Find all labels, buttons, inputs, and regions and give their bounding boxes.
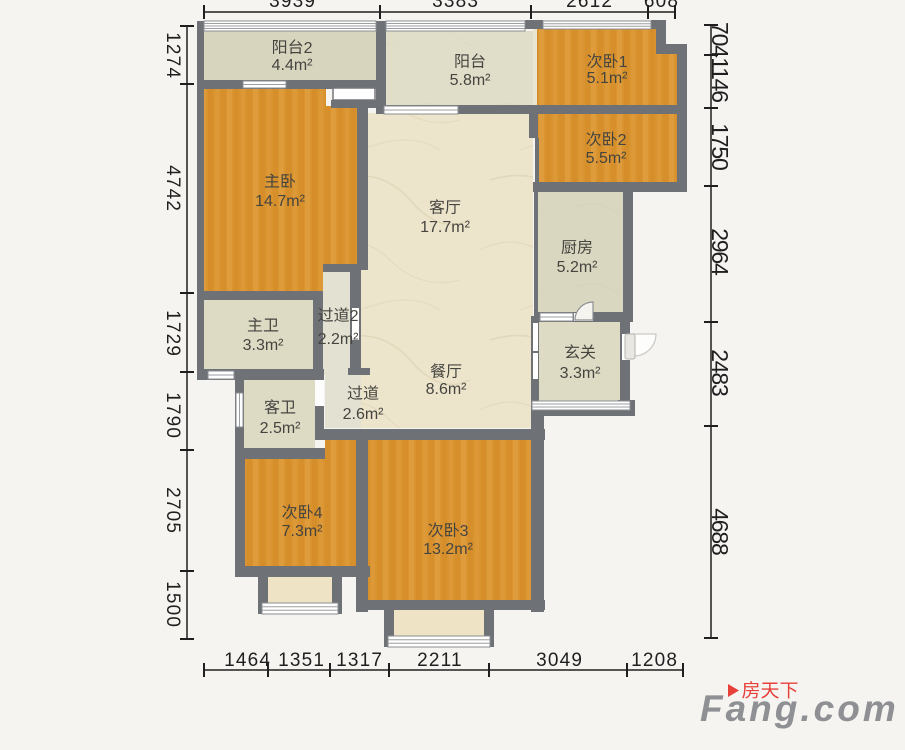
svg-text:Fang.com: Fang.com xyxy=(700,688,899,729)
svg-text:4: 4 xyxy=(314,505,323,522)
svg-text:3939: 3939 xyxy=(269,0,316,12)
svg-text:1464: 1464 xyxy=(224,650,271,671)
svg-text:5.8m²: 5.8m² xyxy=(450,72,492,89)
svg-text:5.5m²: 5.5m² xyxy=(586,150,628,167)
svg-text:1750: 1750 xyxy=(707,123,733,170)
svg-text:1317: 1317 xyxy=(336,650,383,671)
svg-text:2612: 2612 xyxy=(566,0,613,12)
svg-text:17.7m²: 17.7m² xyxy=(420,219,470,236)
svg-text:5.1m²: 5.1m² xyxy=(587,70,629,87)
svg-text:7.3m²: 7.3m² xyxy=(282,523,324,540)
svg-text:3383: 3383 xyxy=(432,0,479,12)
svg-text:704: 704 xyxy=(707,22,733,58)
svg-text:3: 3 xyxy=(460,523,469,540)
svg-text:4688: 4688 xyxy=(707,508,733,555)
svg-text:1351: 1351 xyxy=(278,650,325,671)
svg-text:2: 2 xyxy=(304,40,313,57)
svg-text:2705: 2705 xyxy=(162,487,183,534)
svg-text:608: 608 xyxy=(644,0,679,12)
svg-text:14.7m²: 14.7m² xyxy=(255,193,305,210)
svg-text:4.4m²: 4.4m² xyxy=(272,57,314,74)
svg-text:2: 2 xyxy=(350,308,359,325)
svg-text:2.5m²: 2.5m² xyxy=(260,420,302,437)
svg-text:1500: 1500 xyxy=(162,581,183,628)
svg-text:13.2m²: 13.2m² xyxy=(423,541,473,558)
svg-text:3049: 3049 xyxy=(536,650,583,671)
svg-text:2.6m²: 2.6m² xyxy=(343,406,385,423)
svg-text:1274: 1274 xyxy=(162,32,183,79)
svg-text:2211: 2211 xyxy=(417,650,463,671)
svg-text:1790: 1790 xyxy=(162,392,183,439)
svg-text:2483: 2483 xyxy=(707,349,733,396)
svg-text:1: 1 xyxy=(619,54,628,71)
svg-text:1729: 1729 xyxy=(162,310,183,357)
svg-text:3.3m²: 3.3m² xyxy=(560,365,602,382)
svg-text:2: 2 xyxy=(618,132,627,149)
svg-text:8.6m²: 8.6m² xyxy=(426,381,468,398)
svg-text:1146: 1146 xyxy=(707,57,733,102)
svg-text:5.2m²: 5.2m² xyxy=(557,259,599,276)
svg-text:1208: 1208 xyxy=(631,650,678,671)
svg-text:4742: 4742 xyxy=(162,165,183,212)
svg-text:2.2m²: 2.2m² xyxy=(318,331,360,348)
svg-text:2964: 2964 xyxy=(707,228,733,276)
svg-text:3.3m²: 3.3m² xyxy=(243,337,285,354)
